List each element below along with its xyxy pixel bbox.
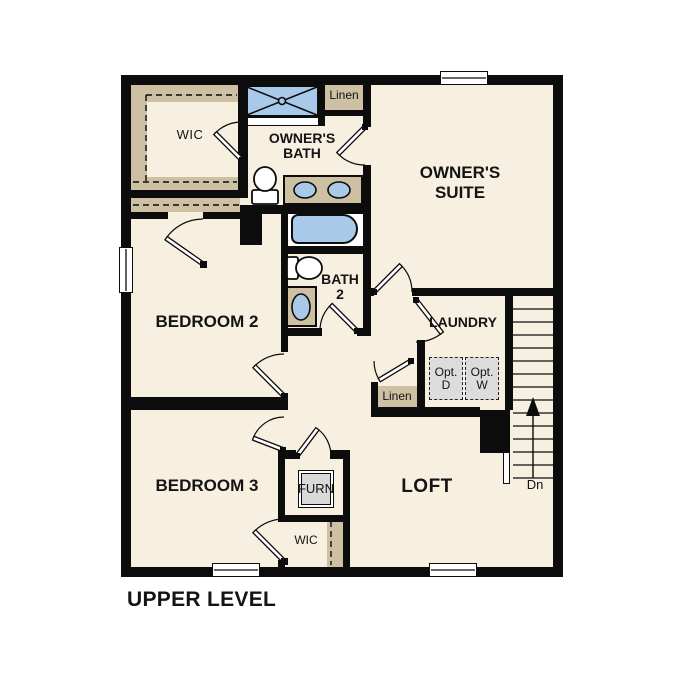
owners-suite-label: OWNER'S SUITE (390, 163, 530, 203)
exterior-wall-right (553, 75, 563, 577)
opt-dryer-box: Opt. D (429, 357, 463, 400)
opt-washer-label-2: W (476, 379, 487, 392)
furnace-wic-right-wall (343, 450, 350, 567)
linen-top-label: Linen (325, 89, 363, 102)
stair-landing-block (480, 410, 510, 453)
wic-bottom-shelf-strip (327, 519, 343, 567)
opt-washer-label-1: Opt. (471, 366, 494, 379)
loft-label: LOFT (385, 477, 469, 498)
laundry-bottom-wall (371, 407, 480, 417)
shower-pan (245, 85, 319, 117)
suite-wall-upper (363, 85, 371, 127)
exterior-wall-top (121, 75, 563, 85)
wic-top-label: WIC (158, 128, 222, 142)
owners-suite-label-1: OWNER'S (390, 163, 530, 183)
owners-bath-label-2: BATH (252, 146, 352, 161)
wic-bottom-label: WIC (283, 534, 329, 547)
linen-bottom-label: Linen (377, 390, 417, 403)
wic-bottom-left-stub (278, 560, 285, 567)
window-bottom-bedroom3 (212, 563, 260, 577)
bath2-label: BATH 2 (312, 272, 368, 302)
bath2-label-1: BATH (312, 272, 368, 287)
bath2-bottom-wall-right (357, 328, 371, 336)
shower-linen-divider (318, 85, 325, 126)
laundry-label: LAUNDRY (419, 315, 507, 330)
shower-curb (245, 117, 319, 126)
window-top (440, 71, 488, 85)
bedroom-divider-wall (131, 397, 288, 410)
owners-bath-label: OWNER'S BATH (252, 131, 352, 161)
window-bottom-loft (429, 563, 477, 577)
floor-plan: Opt. D Opt. W (0, 0, 687, 687)
exterior-wall-left (121, 75, 131, 577)
bath-row-wall (240, 205, 367, 214)
owners-suite-label-2: SUITE (390, 183, 530, 203)
furnace-top-wall-left (278, 450, 296, 459)
bedroom2-top-wall-right (203, 212, 240, 219)
tub-room-bottom-wall (281, 246, 371, 254)
bedroom2-top-wall-left (131, 212, 168, 219)
stairs-left-wall (505, 296, 513, 410)
suite-bottom-wall (412, 288, 553, 296)
laundry-left-wall (417, 340, 425, 407)
furnace-label: FURN (285, 482, 347, 496)
bath2-label-2: 2 (312, 287, 368, 302)
wic-top-right-wall (238, 85, 248, 198)
owners-bath-label-1: OWNER'S (252, 131, 352, 146)
bath-chase-block (240, 214, 262, 245)
bath2-bottom-wall-left (281, 328, 322, 336)
bedroom2-label: BEDROOM 2 (131, 313, 283, 331)
bedroom2-closet-strip (131, 198, 240, 212)
wic-bottom-top-wall (278, 515, 350, 522)
bathtub (291, 214, 358, 244)
opt-dryer-label-1: Opt. (435, 366, 458, 379)
exterior-wall-bottom (121, 567, 563, 577)
stair-railing (503, 452, 510, 484)
owners-bath-vanity (283, 175, 363, 205)
page-title: UPPER LEVEL (127, 589, 347, 612)
stairs-down-label: Dn (520, 478, 550, 492)
linen-top-closet-front (325, 110, 363, 116)
bedroom3-label: BEDROOM 3 (131, 477, 283, 495)
opt-washer-box: Opt. W (465, 357, 499, 400)
window-left (119, 247, 133, 293)
opt-dryer-label-2: D (442, 379, 451, 392)
wic-top-bottom-wall (131, 190, 238, 198)
